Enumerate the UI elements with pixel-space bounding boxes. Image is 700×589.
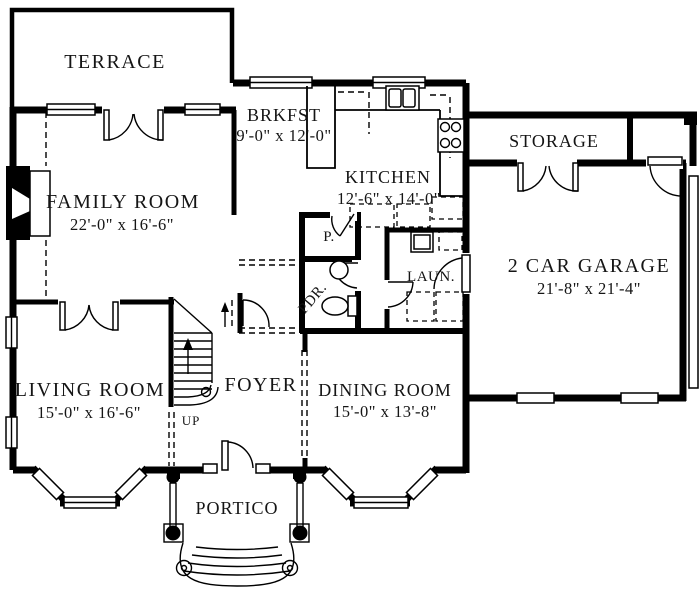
dining-room-label: DINING ROOM [318,380,452,400]
washer-dashed [407,292,434,321]
kitchen-dims: 12'-6" x 14'-0" [337,189,441,208]
garage-door-marker [517,393,554,403]
bay-window [322,468,353,499]
garage-corner-pier [684,112,697,125]
toilet [322,296,357,316]
bay-window [406,468,437,499]
bay-window [354,497,408,508]
foyer-label: FOYER [224,374,297,396]
fireplace [6,166,50,240]
bay-window [32,468,63,499]
room-labels: TERRACE FAMILY ROOM 22'-0" x 16'-6" BRKF… [15,51,670,518]
pantry-label: P. [323,229,334,245]
terrace-label: TERRACE [64,51,166,73]
hall-family-door [243,300,269,327]
window [47,104,95,115]
bay-window [115,468,146,499]
window [6,417,17,448]
laundry-sink [411,232,433,252]
column [166,526,181,541]
brkfst-dims: 9'-0" x 12'-0" [236,126,331,145]
dining-room-dims: 15'-0" x 13'-8" [333,402,437,421]
portico-label: PORTICO [196,498,279,518]
living-room-label: LIVING ROOM [15,379,165,401]
garage-label: 2 CAR GARAGE [508,255,670,277]
powder-sink [330,261,348,279]
family-room-dims: 22'-0" x 16'-6" [70,215,174,234]
garage-door-marker [621,393,658,403]
living-room-dims: 15'-0" x 16'-6" [37,403,141,422]
cooktop [438,119,464,152]
laundry-label: LAUN. [407,269,455,285]
column [167,471,180,484]
window [250,77,312,88]
up-arrow-head [183,338,193,350]
sidelight-window [256,464,270,473]
portico-structure [164,467,309,586]
sidelight-window [203,464,217,473]
family-room-label: FAMILY ROOM [46,191,200,213]
brkfst-label: BRKFST [247,105,321,125]
stairs-up-label: UP [182,413,201,428]
column [293,526,308,541]
garage-service-door [648,157,682,196]
kitchen-sink [386,86,419,110]
column [294,471,307,484]
bay-window [64,497,116,508]
floor-plan: TERRACE FAMILY ROOM 22'-0" x 16'-6" BRKF… [0,0,700,589]
upper-arrow-head [221,302,229,312]
dryer-dashed [436,292,463,321]
window [6,317,17,348]
staircase [174,299,229,405]
garage-dims: 21'-8" x 21'-4" [537,279,641,298]
kitchen-label: KITCHEN [345,167,431,187]
cabinet-dashed [439,232,462,250]
garage-wing-wall [689,176,698,388]
storage-label: STORAGE [509,131,599,151]
front-steps [177,543,298,586]
window [185,104,220,115]
